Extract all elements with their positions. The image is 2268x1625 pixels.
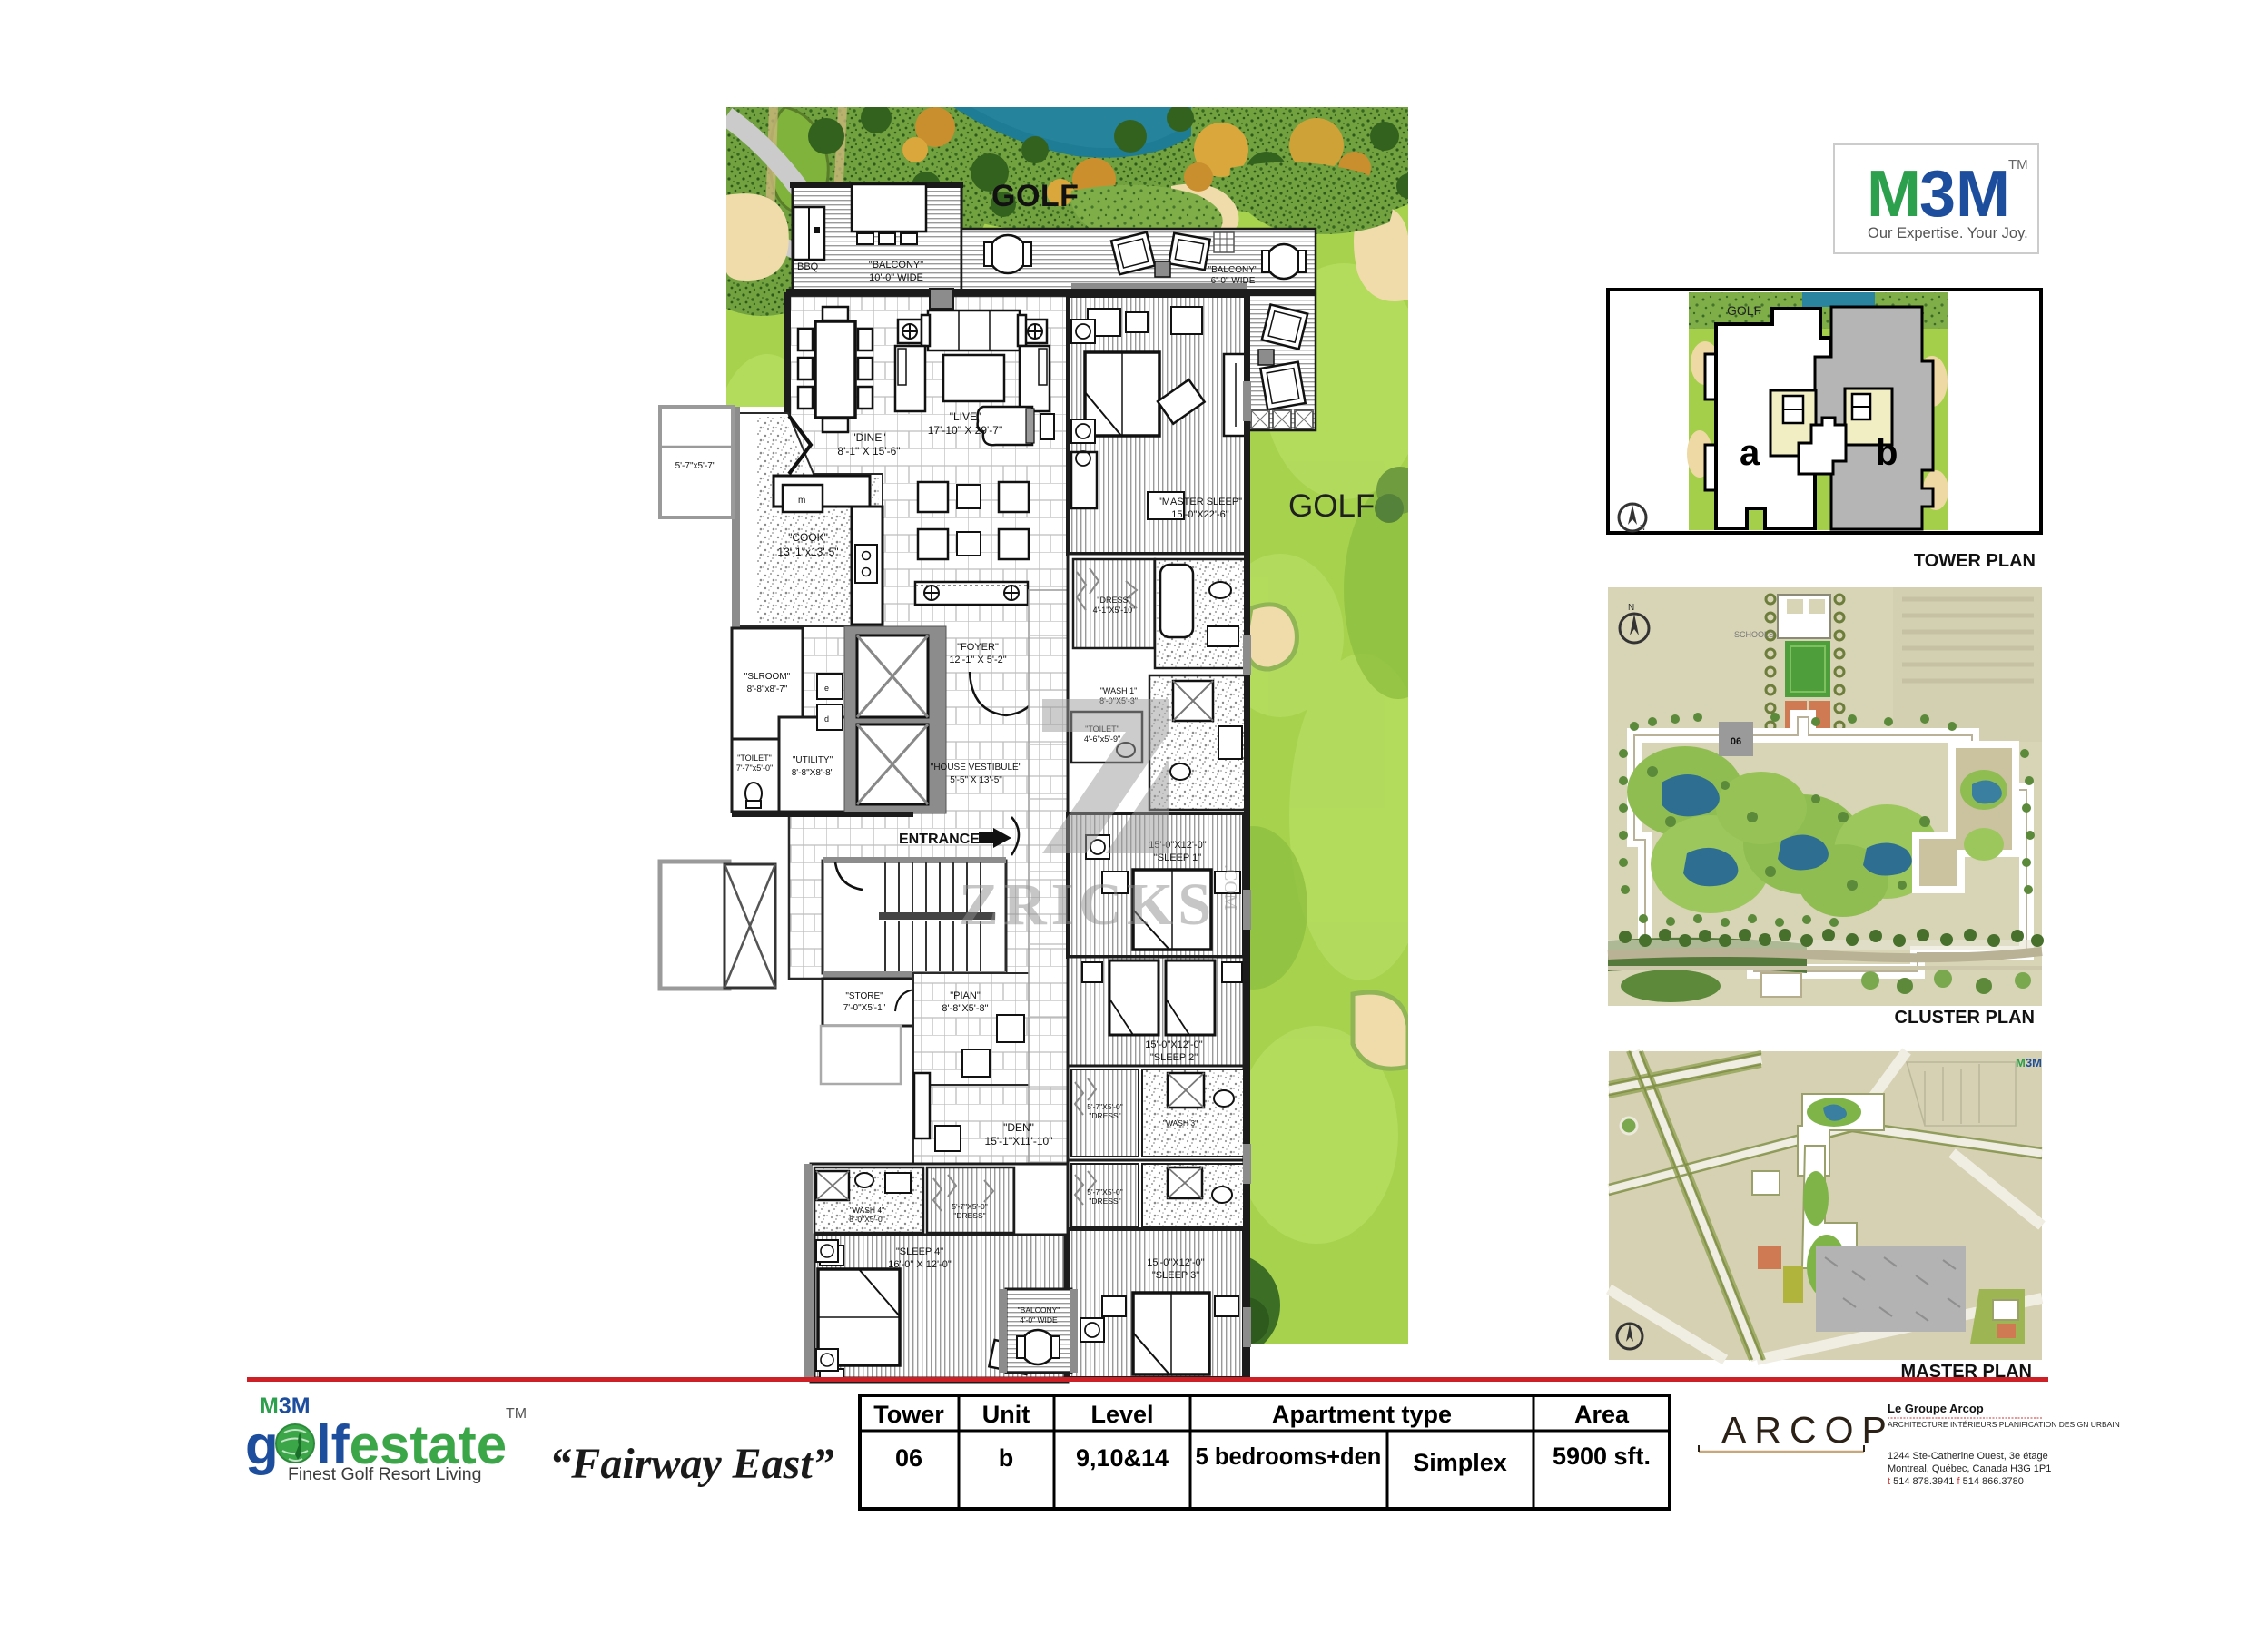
svg-text:"DRESS": "DRESS" (1089, 1111, 1120, 1120)
svg-text:"MASTER SLEEP": "MASTER SLEEP" (1159, 497, 1242, 507)
svg-text:4'-0" WIDE: 4'-0" WIDE (1020, 1315, 1058, 1325)
svg-text:d: d (824, 714, 829, 724)
svg-text:5'-7"X5'-0": 5'-7"X5'-0" (952, 1202, 988, 1211)
svg-text:"DEN": "DEN" (1003, 1121, 1034, 1134)
svg-text:15'-0"X12'-0": 15'-0"X12'-0" (1147, 1257, 1204, 1268)
svg-text:5 bedrooms+den: 5 bedrooms+den (1196, 1444, 1382, 1470)
svg-text:"DRESS": "DRESS" (953, 1211, 985, 1220)
svg-text:ZRICKS: ZRICKS (959, 872, 1216, 938)
svg-text:4'-6"x5'-9": 4'-6"x5'-9" (1084, 734, 1120, 744)
svg-text:Simplex: Simplex (1413, 1449, 1507, 1476)
svg-text:"SLEEP 4": "SLEEP 4" (896, 1246, 943, 1257)
svg-text:.COM: .COM (1220, 864, 1240, 911)
svg-text:8'-8"X8'-8": 8'-8"X8'-8" (792, 768, 834, 778)
svg-text:Tower: Tower (873, 1401, 944, 1428)
svg-text:b: b (999, 1444, 1014, 1472)
svg-text:"TOILET": "TOILET" (737, 753, 772, 763)
svg-text:TM: TM (2008, 157, 2028, 172)
svg-text:ARCHITECTURE INTÉRIEURS PL: ARCHITECTURE INTÉRIEURS PLANIFICATION DE… (1888, 1420, 2120, 1429)
svg-text:ENTRANCE: ENTRANCE (899, 832, 980, 847)
svg-text:SCHOOLS: SCHOOLS (1734, 630, 1774, 639)
svg-text:M: M (1867, 158, 1921, 231)
svg-text:7'-7"x5'-0": 7'-7"x5'-0" (736, 763, 773, 773)
svg-text:"UTILITY": "UTILITY" (793, 755, 833, 765)
svg-text:Level: Level (1090, 1401, 1153, 1428)
svg-text:06: 06 (1731, 736, 1741, 747)
svg-text:15'-1"X11'-10": 15'-1"X11'-10" (985, 1135, 1053, 1147)
svg-text:N: N (1628, 603, 1634, 613)
svg-text:15'-0"X12'-0": 15'-0"X12'-0" (1145, 1039, 1202, 1050)
svg-text:8'-8"X5'-8": 8'-8"X5'-8" (942, 1003, 988, 1014)
svg-text:8'-1" X 15'-6": 8'-1" X 15'-6" (837, 445, 900, 458)
svg-text:GOLF: GOLF (1727, 303, 1761, 318)
svg-text:5'-5" X 13'-5": 5'-5" X 13'-5" (950, 775, 1002, 785)
svg-text:Our Expertise. Your Joy.: Our Expertise. Your Joy. (1868, 225, 2028, 241)
svg-text:"DINE": "DINE" (852, 431, 885, 444)
svg-text:"COOK": "COOK" (788, 531, 828, 544)
svg-text:m: m (798, 496, 805, 506)
svg-text:4'-1"X5'-10": 4'-1"X5'-10" (1093, 606, 1136, 615)
svg-text:"BALCONY": "BALCONY" (1208, 265, 1258, 275)
svg-text:M3M: M3M (2016, 1056, 2042, 1069)
svg-text:"SLROOM": "SLROOM" (744, 672, 791, 682)
svg-text:06: 06 (895, 1444, 922, 1472)
svg-text:"HOUSE VESTIBULE": "HOUSE VESTIBULE" (931, 763, 1022, 773)
svg-text:Area: Area (1574, 1401, 1630, 1428)
svg-text:"BALCONY": "BALCONY" (1018, 1305, 1060, 1315)
svg-text:"FOYER": "FOYER" (957, 642, 999, 653)
svg-text:ARCOP: ARCOP (1721, 1409, 1895, 1451)
svg-text:Apartment type: Apartment type (1272, 1401, 1452, 1428)
svg-text:13'-1"x13'-5": 13'-1"x13'-5" (777, 546, 838, 558)
svg-text:Finest Golf Resort Living: Finest Golf Resort Living (288, 1464, 482, 1484)
svg-text:15'-0"X22'-6": 15'-0"X22'-6" (1171, 509, 1228, 520)
svg-text:"BALCONY": "BALCONY" (869, 260, 923, 271)
svg-text:"DRESS": "DRESS" (1089, 1197, 1120, 1206)
svg-text:12'-1" X 5'-2": 12'-1" X 5'-2" (949, 655, 1006, 665)
svg-text:8'-0"X5'-0": 8'-0"X5'-0" (849, 1215, 885, 1224)
svg-text:N: N (1640, 524, 1645, 532)
svg-text:b: b (1876, 433, 1898, 473)
svg-text:17'-10" X 29'-7": 17'-10" X 29'-7" (928, 424, 1002, 437)
svg-text:Le Groupe Arcop: Le Groupe Arcop (1888, 1402, 1984, 1415)
svg-text:"WASH 3": "WASH 3" (1163, 1118, 1198, 1128)
svg-text:TOWER PLAN: TOWER PLAN (1914, 551, 2036, 571)
svg-text:5'-7"X5'-0": 5'-7"X5'-0" (1087, 1187, 1123, 1197)
svg-text:9,10&14: 9,10&14 (1076, 1444, 1169, 1472)
svg-text:Montreal, Québec, Canada H3G 1: Montreal, Québec, Canada H3G 1P1 (1888, 1463, 2051, 1474)
svg-text:5'-7"X5'-0": 5'-7"X5'-0" (1087, 1102, 1123, 1111)
svg-text:a: a (1740, 433, 1760, 473)
svg-text:GOLF: GOLF (991, 179, 1079, 213)
svg-text:5900 sft.: 5900 sft. (1553, 1443, 1651, 1470)
svg-text:e: e (824, 684, 829, 693)
svg-text:Unit: Unit (982, 1401, 1030, 1428)
svg-text:10'-0" WIDE: 10'-0" WIDE (869, 272, 923, 283)
svg-text:TM: TM (506, 1406, 527, 1422)
svg-text:BBQ: BBQ (797, 261, 819, 272)
svg-text:"DRESS": "DRESS" (1097, 596, 1130, 605)
svg-text:t 514 878.3941 f 514 866.37: t 514 878.3941 f 514 866.3780 (1888, 1476, 2024, 1487)
svg-text:CLUSTER PLAN: CLUSTER PLAN (1895, 1008, 2035, 1028)
svg-text:5'-7"x5'-7": 5'-7"x5'-7" (675, 461, 716, 471)
svg-text:GOLF: GOLF (1288, 488, 1375, 524)
svg-text:"WASH 1": "WASH 1" (1100, 686, 1138, 695)
svg-text:"STORE": "STORE" (845, 991, 883, 1001)
svg-text:1244 Ste-Catherine Ouest, 3e é: 1244 Ste-Catherine Ouest, 3e étage (1888, 1451, 2048, 1462)
svg-text:8'-8"x8'-7": 8'-8"x8'-7" (747, 684, 788, 694)
svg-text:"SLEEP 3": "SLEEP 3" (1152, 1270, 1199, 1281)
svg-text:“Fairway East”: “Fairway East” (549, 1440, 833, 1488)
svg-text:"SLEEP 2": "SLEEP 2" (1150, 1052, 1198, 1063)
svg-text:"WASH 4": "WASH 4" (850, 1206, 884, 1215)
svg-text:"PIAN": "PIAN" (950, 990, 981, 1001)
svg-text:7'-0"X5'-1": 7'-0"X5'-1" (843, 1003, 886, 1013)
svg-text:3M: 3M (1919, 158, 2010, 231)
svg-text:"SLEEP 1": "SLEEP 1" (1154, 852, 1201, 863)
svg-text:"LIVE": "LIVE" (950, 410, 981, 423)
